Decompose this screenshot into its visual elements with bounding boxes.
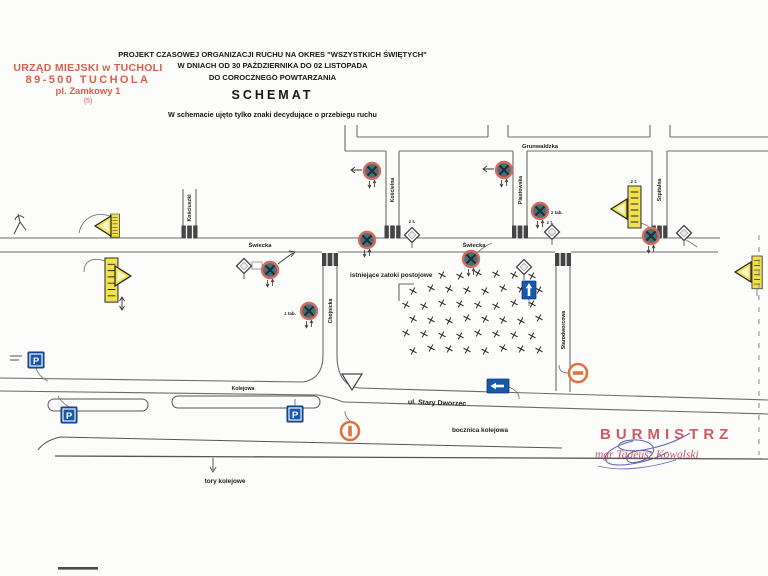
priority-road-sign bbox=[517, 260, 532, 281]
yield-sign bbox=[115, 266, 131, 286]
no-stopping-sign bbox=[643, 228, 659, 253]
sign-plate-small bbox=[252, 262, 262, 269]
cemetery-cross bbox=[462, 313, 473, 324]
label-stary-dworzec: ul. Stary Dworzec bbox=[408, 399, 467, 408]
cemetery-cross bbox=[473, 300, 484, 311]
plate-note: z tab. bbox=[551, 210, 563, 215]
label-parking-bays: istniejące zatoki postojowe bbox=[350, 272, 433, 279]
yield-sign bbox=[611, 199, 627, 219]
no-stopping-sign bbox=[496, 162, 512, 187]
crosswalk-hatch bbox=[322, 253, 338, 266]
cemetery-cross bbox=[516, 316, 527, 327]
plate-note: z tab. bbox=[284, 311, 296, 316]
cemetery-cross bbox=[498, 283, 509, 294]
label-rail-tracks: tory kolejowe bbox=[205, 478, 246, 485]
label-szpitalna: Szpitalna bbox=[657, 179, 663, 202]
yellow-info-plate bbox=[752, 256, 762, 289]
plate-note: z t. bbox=[409, 219, 415, 224]
cemetery-cross bbox=[401, 300, 412, 311]
label-starodworcowa: Starodworcowa bbox=[561, 311, 567, 350]
illegible-note bbox=[10, 356, 22, 360]
cemetery-cross bbox=[455, 299, 466, 310]
cemetery-cross bbox=[401, 328, 412, 339]
cemetery-cross bbox=[444, 344, 455, 355]
scanned-document: URZĄD MIEJSKI w TUCHOLI 89-500 TUCHOLA p… bbox=[0, 0, 768, 576]
cemetery-cross bbox=[462, 285, 473, 296]
road-kolejowa bbox=[0, 378, 343, 402]
scan-mark bbox=[58, 567, 98, 570]
cemetery-cross bbox=[455, 271, 466, 282]
cemetery-cross bbox=[491, 329, 502, 340]
cemetery-cross bbox=[516, 344, 527, 355]
crosswalk-hatch bbox=[555, 253, 571, 266]
sign-leaders bbox=[36, 166, 757, 421]
priority-road-sign bbox=[545, 225, 560, 246]
cemetery-cross bbox=[480, 346, 491, 357]
cemetery-cross bbox=[408, 346, 419, 357]
direction-arrow-sign bbox=[487, 379, 509, 393]
cemetery-cross bbox=[509, 298, 520, 309]
tracks-pointer-arrow bbox=[210, 458, 216, 472]
cemetery-cross bbox=[444, 284, 455, 295]
label-rail-siding: bocznica kolejowa bbox=[452, 427, 509, 434]
cemetery-cross bbox=[426, 343, 437, 354]
one-way-sign bbox=[522, 281, 536, 299]
yield-sign bbox=[735, 262, 751, 282]
sketch-mark bbox=[14, 214, 26, 234]
parking-sign bbox=[287, 406, 303, 422]
yellow-info-plate bbox=[111, 214, 120, 237]
no-stopping-sign bbox=[301, 303, 317, 328]
parking-bays bbox=[48, 396, 320, 411]
crosswalk-hatch bbox=[182, 226, 198, 239]
priority-road-sign bbox=[237, 259, 252, 280]
cemetery-cross bbox=[426, 315, 437, 326]
cemetery-cross bbox=[491, 269, 502, 280]
no-entry-sign bbox=[341, 422, 359, 440]
yellow-info-plate bbox=[628, 186, 641, 228]
rail-siding-line bbox=[38, 437, 562, 450]
cemetery-cross bbox=[527, 331, 538, 342]
label-koscielna: Kościelna bbox=[390, 178, 396, 203]
cemetery-cross bbox=[491, 301, 502, 312]
cemetery-cross bbox=[534, 313, 545, 324]
plate-note: z t. bbox=[631, 179, 637, 184]
cemetery-cross bbox=[419, 301, 430, 312]
priority-road-sign bbox=[405, 228, 420, 249]
cemetery-cross bbox=[408, 314, 419, 325]
label-grunwaldzka: Grunwaldzka bbox=[522, 144, 559, 150]
cemetery-cross bbox=[437, 270, 448, 281]
cemetery-cross bbox=[509, 330, 520, 341]
cemetery-cross bbox=[534, 345, 545, 356]
cemetery-cross bbox=[408, 286, 419, 297]
mayor-signature-name: mgr Tadeusz Kowalski bbox=[595, 449, 699, 461]
no-stopping-sign bbox=[359, 232, 375, 257]
label-swiecka: Świecka bbox=[249, 242, 273, 249]
cemetery-cross bbox=[437, 330, 448, 341]
cemetery-cross bbox=[509, 270, 520, 281]
cemetery-cross bbox=[455, 331, 466, 342]
street-labels: Grunwaldzka Świecka Świecka Kościuszki K… bbox=[187, 144, 663, 485]
parking-sign bbox=[28, 352, 44, 368]
cemetery-cross bbox=[473, 328, 484, 339]
cemetery-cross bbox=[419, 329, 430, 340]
cemetery-cross bbox=[462, 345, 473, 356]
yield-sign bbox=[95, 216, 111, 236]
no-stopping-sign bbox=[532, 203, 548, 228]
cemetery-cross bbox=[480, 286, 491, 297]
crosswalk-hatch bbox=[512, 226, 528, 239]
sketch-marks bbox=[10, 214, 26, 360]
cemetery-cross bbox=[498, 315, 509, 326]
no-stopping-sign bbox=[262, 262, 278, 287]
label-kolejowa: Kolejowa bbox=[232, 386, 255, 392]
priority-road-sign bbox=[677, 226, 692, 247]
cemetery-cross bbox=[426, 283, 437, 294]
label-piastowska: Piastowska bbox=[518, 176, 524, 204]
crosswalk-hatch bbox=[385, 226, 401, 239]
traffic-scheme-map: P bbox=[0, 0, 768, 576]
road-stary-dworzec bbox=[343, 388, 768, 414]
cemetery-cross bbox=[444, 316, 455, 327]
no-entry-sign bbox=[569, 364, 587, 382]
cemetery-cross bbox=[527, 299, 538, 310]
mayor-title: BURMISTRZ bbox=[600, 426, 733, 443]
no-stopping-sign bbox=[364, 163, 380, 188]
parking-sign bbox=[61, 407, 77, 423]
cemetery-cross bbox=[527, 271, 538, 282]
cemetery-cross bbox=[498, 343, 509, 354]
label-kosciuszki: Kościuszki bbox=[187, 194, 193, 222]
cemetery-cross bbox=[437, 298, 448, 309]
label-chojnicka: Chojnicka bbox=[328, 298, 334, 323]
cemetery-cross bbox=[480, 314, 491, 325]
